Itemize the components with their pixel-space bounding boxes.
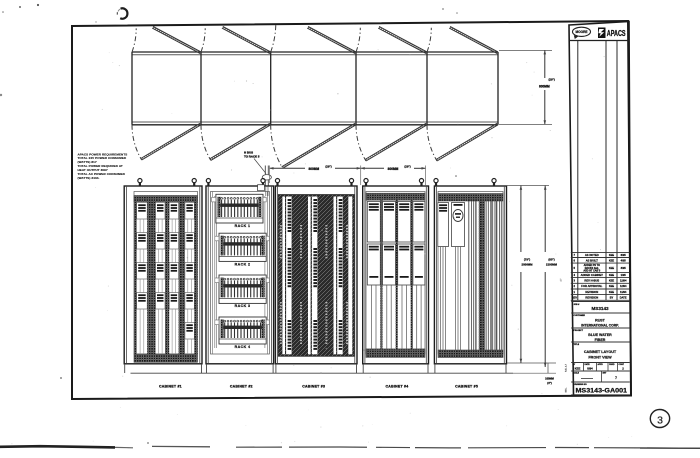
svg-text:DRAWING NO: DRAWING NO: [574, 383, 588, 386]
svg-text:11/94: 11/94: [620, 290, 627, 294]
svg-text:KEE: KEE: [609, 273, 615, 277]
svg-text:RACK 2: RACK 2: [235, 262, 251, 266]
svg-text:12/94: 12/94: [620, 284, 627, 288]
svg-text:CHKD: CHKD: [609, 364, 615, 366]
svg-text:TITLE: TITLE: [574, 344, 580, 346]
svg-text:KEE: KEE: [609, 266, 615, 270]
svg-text:4/95: 4/95: [621, 258, 627, 262]
svg-text:MOORE: MOORE: [575, 30, 587, 34]
svg-text:REV: REV: [572, 296, 578, 300]
svg-text:(29"): (29"): [549, 78, 555, 82]
svg-text:CABINET #1: CABINET #1: [159, 384, 182, 388]
svg-text:PROJECT: PROJECT: [574, 330, 584, 332]
svg-text:CABINET #2: CABINET #2: [230, 384, 253, 388]
svg-text:ADDED CABINET: ADDED CABINET: [581, 273, 604, 277]
svg-text:REVISION: REVISION: [585, 296, 598, 300]
svg-text:ADD HT CAB 3: ADD HT CAB 3: [583, 270, 601, 273]
svg-text:KEE: KEE: [609, 279, 615, 283]
svg-text:BLUE WATER: BLUE WATER: [588, 333, 612, 337]
svg-text:CABINET #5: CABINET #5: [455, 384, 478, 388]
svg-text:R.E. 4-7: R.E. 4-7: [565, 363, 568, 372]
svg-text:CUSTOMER: CUSTOMER: [574, 315, 586, 317]
svg-text:REVISION: REVISION: [585, 290, 598, 294]
svg-text:6/95: 6/95: [621, 253, 627, 257]
svg-text:8/94: 8/94: [587, 366, 593, 370]
svg-text:REV H-BUS: REV H-BUS: [584, 279, 599, 283]
svg-text:100MM: 100MM: [545, 377, 554, 381]
svg-text:FRONT VIEW: FRONT VIEW: [588, 356, 612, 360]
svg-text:800MM: 800MM: [308, 167, 319, 171]
svg-text:3: 3: [657, 414, 663, 426]
svg-text:800MM: 800MM: [388, 167, 399, 171]
svg-text:TO RACK 5: TO RACK 5: [244, 154, 260, 158]
svg-text:RACK 3: RACK 3: [235, 304, 251, 308]
svg-text:INTERNATIONAL CORP.: INTERNATIONAL CORP.: [581, 323, 619, 327]
svg-text:FIBER: FIBER: [595, 338, 606, 342]
svg-text:(WATTS) 3434.: (WATTS) 3434.: [78, 176, 100, 180]
svg-text:KEE: KEE: [609, 290, 615, 294]
svg-text:BY: BY: [610, 296, 614, 300]
svg-text:(29"): (29"): [325, 165, 331, 169]
svg-text:2006MM: 2006MM: [522, 262, 534, 266]
svg-text:SCALE: SCALE: [573, 372, 580, 375]
svg-text:1/95: 1/95: [621, 273, 627, 277]
svg-text:7: 7: [615, 376, 617, 380]
svg-text:DATE: DATE: [620, 296, 627, 300]
svg-text:CABINET #4: CABINET #4: [386, 384, 409, 388]
svg-text:2100MM: 2100MM: [546, 262, 558, 266]
svg-text:(29"): (29"): [404, 165, 410, 169]
svg-text:APPD: APPD: [598, 363, 604, 366]
svg-text:KEE: KEE: [609, 284, 615, 288]
svg-text:MS3143-GA001: MS3143-GA001: [576, 388, 628, 395]
svg-text:MIC.: MIC.: [566, 387, 568, 392]
svg-text:CABINET #3: CABINET #3: [302, 384, 325, 388]
svg-text:(79″): (79″): [524, 258, 530, 262]
svg-text:(83″): (83″): [548, 258, 554, 262]
svg-text:12/94: 12/94: [620, 279, 627, 283]
svg-text:KEE: KEE: [609, 258, 615, 262]
svg-text:CONT: CONT: [619, 364, 625, 366]
svg-text:CABINET LAYOUT: CABINET LAYOUT: [584, 350, 617, 354]
svg-text:KEE: KEE: [609, 253, 615, 257]
svg-text:RUST: RUST: [595, 319, 606, 323]
svg-text:MS3143: MS3143: [591, 306, 609, 311]
svg-text:800MM: 800MM: [539, 85, 550, 89]
svg-text:RACK 1: RACK 1: [235, 224, 251, 228]
svg-text:AS NOTED: AS NOTED: [585, 253, 599, 257]
svg-text:FOR APPROVAL: FOR APPROVAL: [581, 284, 602, 288]
svg-text:RACK 4: RACK 4: [235, 345, 251, 349]
svg-text:APACS: APACS: [607, 28, 626, 38]
svg-text:(4″): (4″): [547, 381, 552, 385]
svg-text:3/95: 3/95: [621, 266, 627, 270]
svg-text:JOB #: JOB #: [574, 304, 581, 306]
svg-text:AS BUILT: AS BUILT: [586, 258, 599, 262]
svg-text:KEE: KEE: [575, 366, 581, 370]
